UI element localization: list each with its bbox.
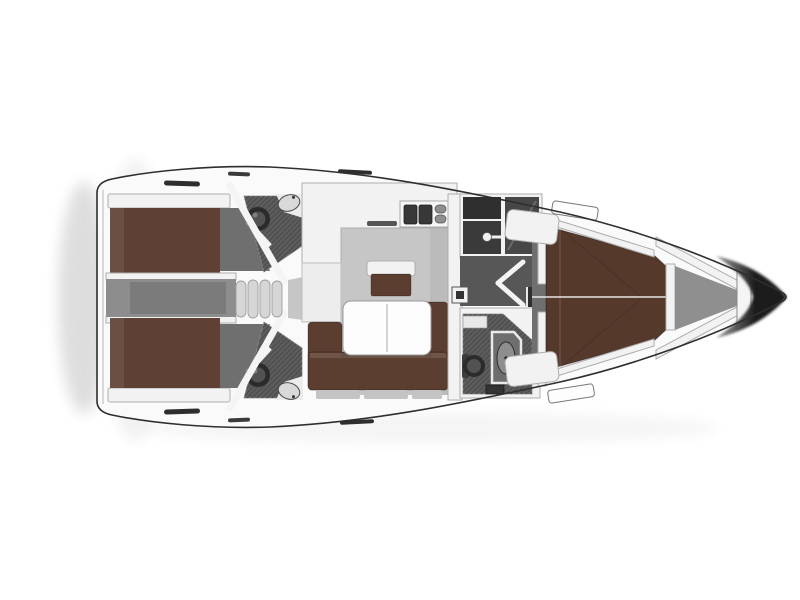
engine-corridor	[106, 273, 236, 323]
bow-section	[656, 237, 787, 359]
aft-port-double-berth	[110, 208, 220, 274]
forepeak-bulkhead	[666, 264, 675, 330]
head-locker	[486, 385, 504, 394]
engine-hatch	[130, 282, 226, 314]
soap-dish	[435, 215, 446, 223]
sofa-base-2	[364, 390, 408, 399]
galley-cabinet	[302, 263, 341, 322]
head-shelf	[463, 316, 487, 328]
step-4	[272, 281, 282, 317]
genoa-track-starboard	[228, 418, 250, 423]
floor-plan-canvas	[0, 0, 800, 600]
sofa-base-1	[316, 390, 360, 399]
forward-shelf-starboard	[504, 351, 559, 387]
step-3	[260, 280, 270, 318]
mast-post-core	[456, 291, 464, 299]
forward-passage	[452, 256, 543, 307]
faucet	[435, 205, 446, 213]
locker-top	[463, 197, 501, 219]
galley-double-sink	[400, 201, 452, 227]
genoa-track-port	[228, 172, 250, 177]
sofa-base-3	[412, 390, 442, 399]
corridor-trim-top	[106, 273, 236, 280]
berth-highlight	[110, 318, 124, 388]
aft-stbd-double-berth	[110, 318, 220, 388]
wardrobe-door-knob	[483, 233, 492, 242]
aft-port-locker	[108, 194, 230, 208]
aft-stbd-locker	[108, 388, 230, 402]
yacht-floor-plan	[0, 0, 800, 600]
deck-hatch-starboard	[547, 383, 594, 403]
step-1	[236, 281, 246, 317]
step-2	[248, 280, 258, 318]
forward-shelf-port	[504, 209, 559, 245]
stove-front	[367, 221, 397, 226]
berth-highlight	[110, 208, 124, 274]
nav-seat-cushion	[371, 274, 411, 296]
